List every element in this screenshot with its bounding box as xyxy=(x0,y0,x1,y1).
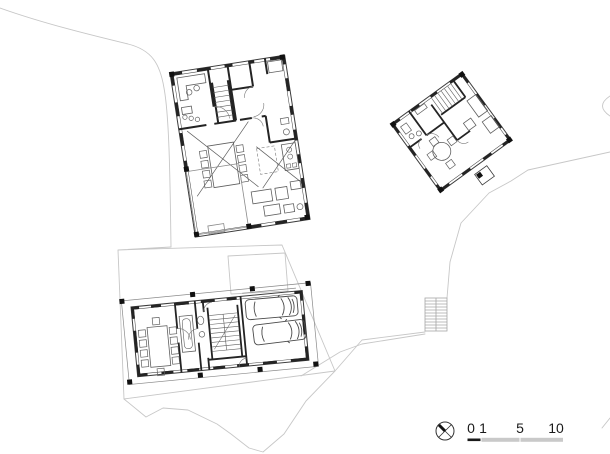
b3-wc xyxy=(197,316,204,325)
scale-label-1: 1 xyxy=(479,420,487,436)
b1-void-crosses xyxy=(187,115,301,198)
b3-bathtub-inner xyxy=(182,318,193,349)
b1-bath-sink xyxy=(283,128,290,135)
terrain-corner-arc xyxy=(603,96,610,116)
terrain-edge-mark xyxy=(602,418,610,428)
b1-office-desk xyxy=(177,74,210,115)
car-body xyxy=(252,319,306,345)
b1-living-plant xyxy=(297,203,304,210)
site-plan-drawing: 0 1 5 10 xyxy=(0,0,610,454)
scale-label-0: 0 xyxy=(467,420,475,436)
b3-bathtub xyxy=(179,315,195,352)
scale-bar-dark-segment xyxy=(468,439,481,442)
b1-interior-walls xyxy=(170,56,295,156)
b3-interior-walls xyxy=(175,296,247,372)
b1-office-chairs xyxy=(178,85,204,124)
b2-stair-treads xyxy=(432,84,462,113)
b3-long-table xyxy=(147,326,171,368)
b3-outer-wall xyxy=(131,291,309,377)
scale-bar-light-segment-1 xyxy=(482,438,520,442)
building-upper-plan xyxy=(169,54,310,237)
scale-bar-light-segment-2 xyxy=(521,438,564,442)
car-body xyxy=(245,296,299,320)
scale-label-5: 5 xyxy=(516,420,524,436)
north-needle xyxy=(439,425,445,431)
b3-car-2 xyxy=(252,317,307,347)
scale-bar: 0 1 5 10 xyxy=(467,420,564,442)
b3-sink xyxy=(199,331,205,337)
terrain-east xyxy=(447,152,610,298)
b1-dining-table xyxy=(208,142,240,187)
b1-door-arcs xyxy=(212,85,268,133)
exterior-stair xyxy=(425,298,447,331)
exterior-stair-treads xyxy=(425,298,447,331)
b3-wall-segments xyxy=(131,291,309,377)
terrain-lines xyxy=(0,8,610,452)
building-garage-plan xyxy=(119,281,318,385)
b3-door-arcs xyxy=(175,299,247,372)
site-plan-svg: 0 1 5 10 xyxy=(0,0,610,454)
north-arrow-icon xyxy=(436,422,454,440)
b1-bed xyxy=(267,60,283,73)
b1-kitchen-sink xyxy=(284,146,297,168)
building-east-plan xyxy=(390,71,524,208)
scale-label-10: 10 xyxy=(548,420,564,436)
b3-stair-break-line xyxy=(211,315,238,349)
contour-northwest xyxy=(0,8,171,247)
b1-living-furniture xyxy=(251,180,305,217)
b3-table-chairs xyxy=(137,316,180,377)
b1-outer-wall xyxy=(170,55,310,237)
b1-bath-fixtures xyxy=(280,117,289,124)
